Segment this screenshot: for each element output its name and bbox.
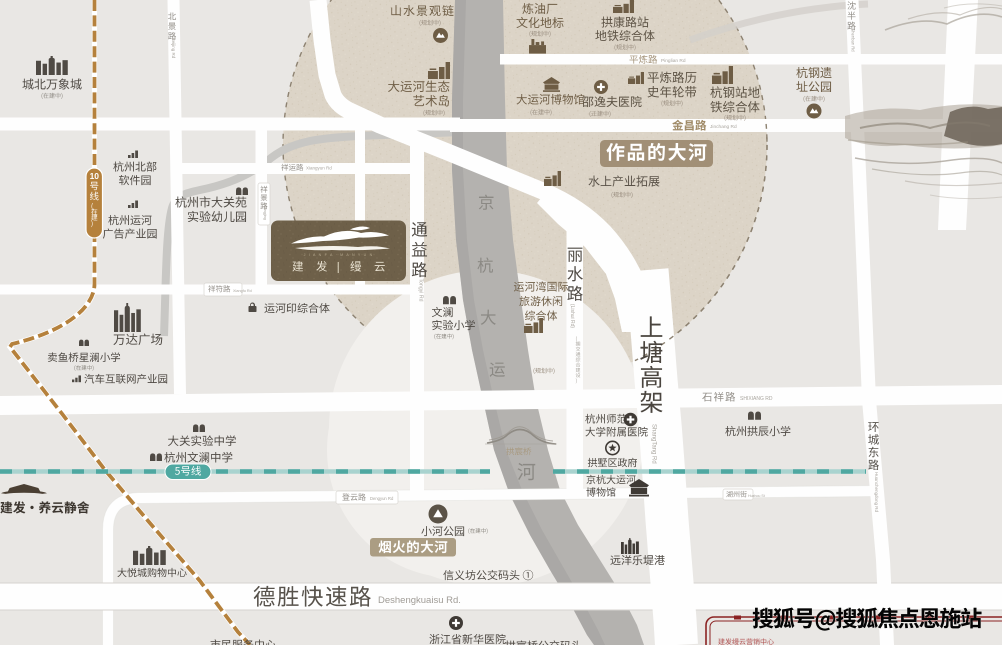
svg-text:Beijing Rd: Beijing Rd bbox=[171, 38, 176, 59]
svg-text:Xiangjing: Xiangjing bbox=[263, 204, 267, 220]
svg-text:Deshengkuaisu Rd.: Deshengkuaisu Rd. bbox=[378, 595, 461, 606]
svg-text:J I A N F A · M A N Y U N: J I A N F A · M A N Y U N bbox=[304, 253, 374, 257]
svg-text:Tongyi Rd: Tongyi Rd bbox=[418, 278, 424, 301]
svg-text:Xiangyun Rd: Xiangyun Rd bbox=[306, 166, 332, 171]
svg-text:Dengyun Rd: Dengyun Rd bbox=[370, 496, 394, 501]
svg-text:Shenban Rd: Shenban Rd bbox=[851, 28, 856, 52]
svg-text:SHIXIANG RD: SHIXIANG RD bbox=[740, 396, 773, 402]
svg-text:Pinglian Rd: Pinglian Rd bbox=[661, 58, 686, 64]
svg-text:Xiangfu Rd: Xiangfu Rd bbox=[233, 289, 252, 293]
svg-text:Huanchengdong Rd: Huanchengdong Rd bbox=[874, 472, 879, 513]
svg-text:ShangTang Rd: ShangTang Rd bbox=[651, 424, 657, 464]
svg-text:(Lishui Rd): (Lishui Rd) bbox=[569, 304, 575, 329]
svg-text:Jinchang Rd: Jinchang Rd bbox=[710, 124, 737, 130]
svg-text:10: 10 bbox=[90, 171, 100, 181]
svg-text:Huzhou St: Huzhou St bbox=[748, 494, 765, 498]
